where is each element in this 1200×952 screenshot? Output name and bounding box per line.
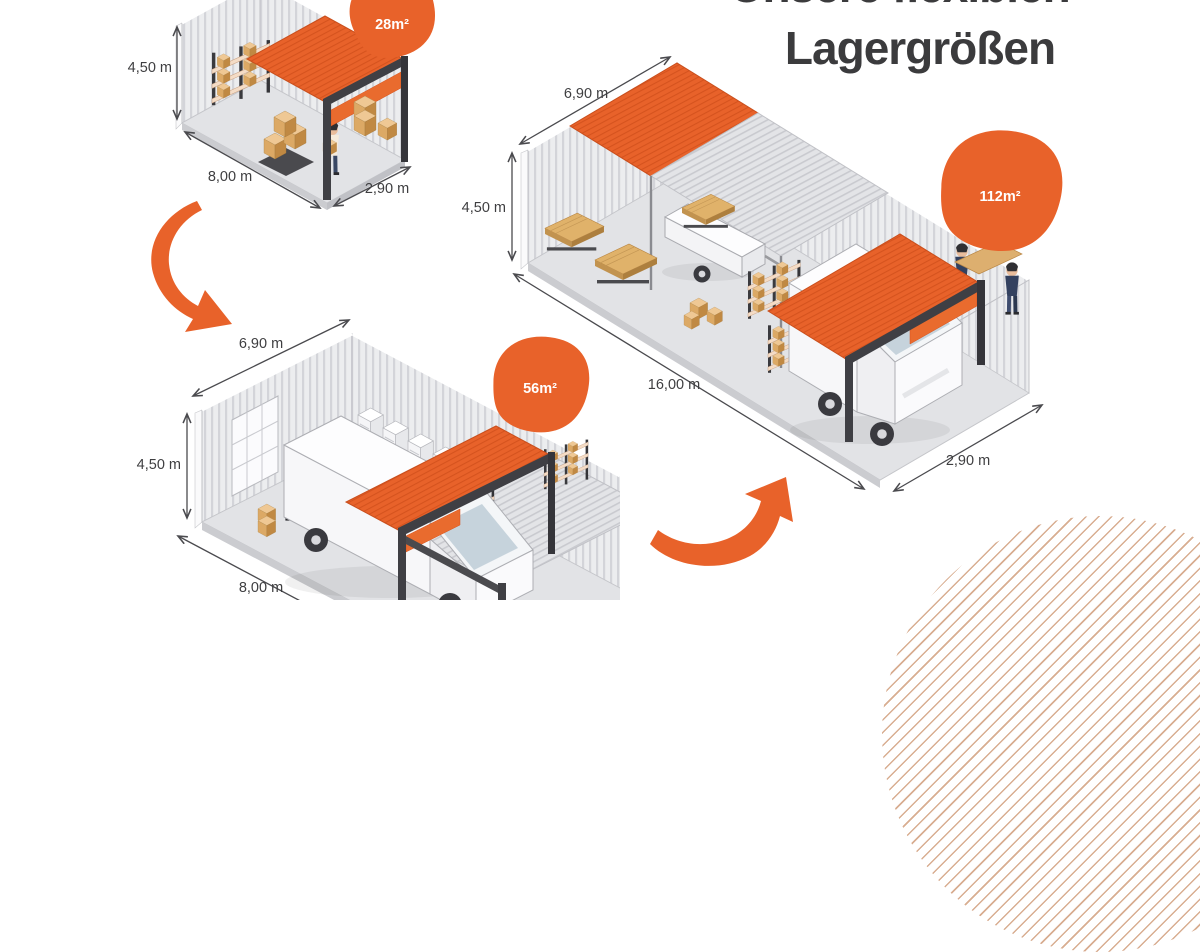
dim-depth-label: 2,90 m	[946, 453, 990, 469]
striped-circle-decoration	[882, 516, 1200, 952]
svg-text:56m²: 56m²	[523, 381, 557, 397]
svg-text:112m²: 112m²	[979, 189, 1020, 205]
curved-arrow-up-icon	[640, 468, 800, 580]
dim-length-label: 8,00 m	[239, 580, 283, 596]
svg-text:28m²: 28m²	[375, 17, 409, 33]
dim-depth-label: 2,90 m	[365, 181, 409, 197]
dim-height-label: 4,50 m	[137, 457, 181, 473]
page-supertitle: Unsere flexiblen	[688, 0, 1112, 13]
dim-top-label: 6,90 m	[564, 86, 608, 102]
storage-unit-56: 6,90 m 4,50 m 8,00 m 56m²	[120, 312, 620, 600]
dim-length-label: 16,00 m	[648, 377, 700, 393]
dim-height-label: 4,50 m	[128, 60, 172, 76]
dim-length-label: 8,00 m	[208, 169, 252, 185]
dim-height-label: 4,50 m	[462, 200, 506, 216]
dim-top-label: 6,90 m	[239, 336, 283, 352]
